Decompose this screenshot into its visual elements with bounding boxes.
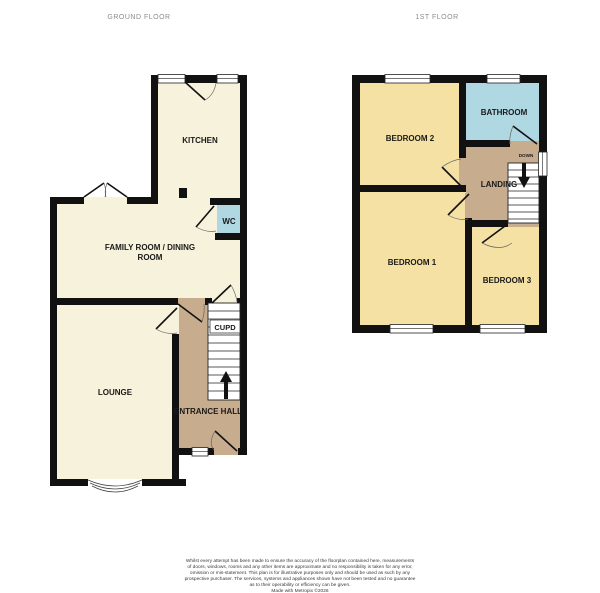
bedroom3-label: BEDROOM 3 [483, 276, 532, 285]
bathroom-label: BATHROOM [481, 108, 528, 117]
family-room-label-line1: FAMILY ROOM / DINING [105, 243, 195, 252]
gf-staircase [208, 303, 240, 400]
disclaimer-line: omission or mis-statement. This plan is … [190, 570, 411, 576]
ff-staircase [508, 163, 539, 223]
floorplan-canvas: KITCHEN WC FAMILY ROOM / DINING ROOM LOU… [0, 0, 600, 593]
first-floor-plan: BEDROOM 2 BATHROOM LANDING DOWN BEDROOM … [352, 75, 547, 334]
french-door-gap [84, 197, 127, 204]
disclaimer-line: of doors, windows, rooms and any other i… [187, 564, 412, 570]
wc-label: WC [222, 217, 236, 226]
french-doors [84, 183, 127, 197]
disclaimer-line: prospective purchaser. The services, sys… [185, 576, 416, 582]
kitchen-label: KITCHEN [182, 136, 218, 145]
disclaimer-line: Whilst every attempt has been made to en… [186, 558, 415, 564]
lounge-label: LOUNGE [98, 388, 133, 397]
hall-door-gap [178, 298, 205, 305]
ground-floor-title: GROUND FLOOR [107, 14, 170, 21]
entrance-hall-label: ENTRANCE HALL [174, 407, 242, 416]
disclaimer: Whilst every attempt has been made to en… [185, 558, 416, 593]
landing-label: LANDING [481, 180, 517, 189]
cupboard-label: CUPD [214, 323, 236, 332]
bedroom2-label: BEDROOM 2 [386, 134, 435, 143]
down-label: DOWN [519, 153, 534, 158]
first-floor-title: 1ST FLOOR [415, 14, 458, 21]
bay-window [88, 479, 142, 492]
family-room-label-line2: ROOM [138, 253, 163, 262]
ground-floor-plan: KITCHEN WC FAMILY ROOM / DINING ROOM LOU… [50, 75, 247, 493]
bedroom2-door-gap [459, 158, 466, 186]
bedroom1-label: BEDROOM 1 [388, 258, 437, 267]
disclaimer-line: as to their operability or efficiency ca… [250, 582, 351, 588]
